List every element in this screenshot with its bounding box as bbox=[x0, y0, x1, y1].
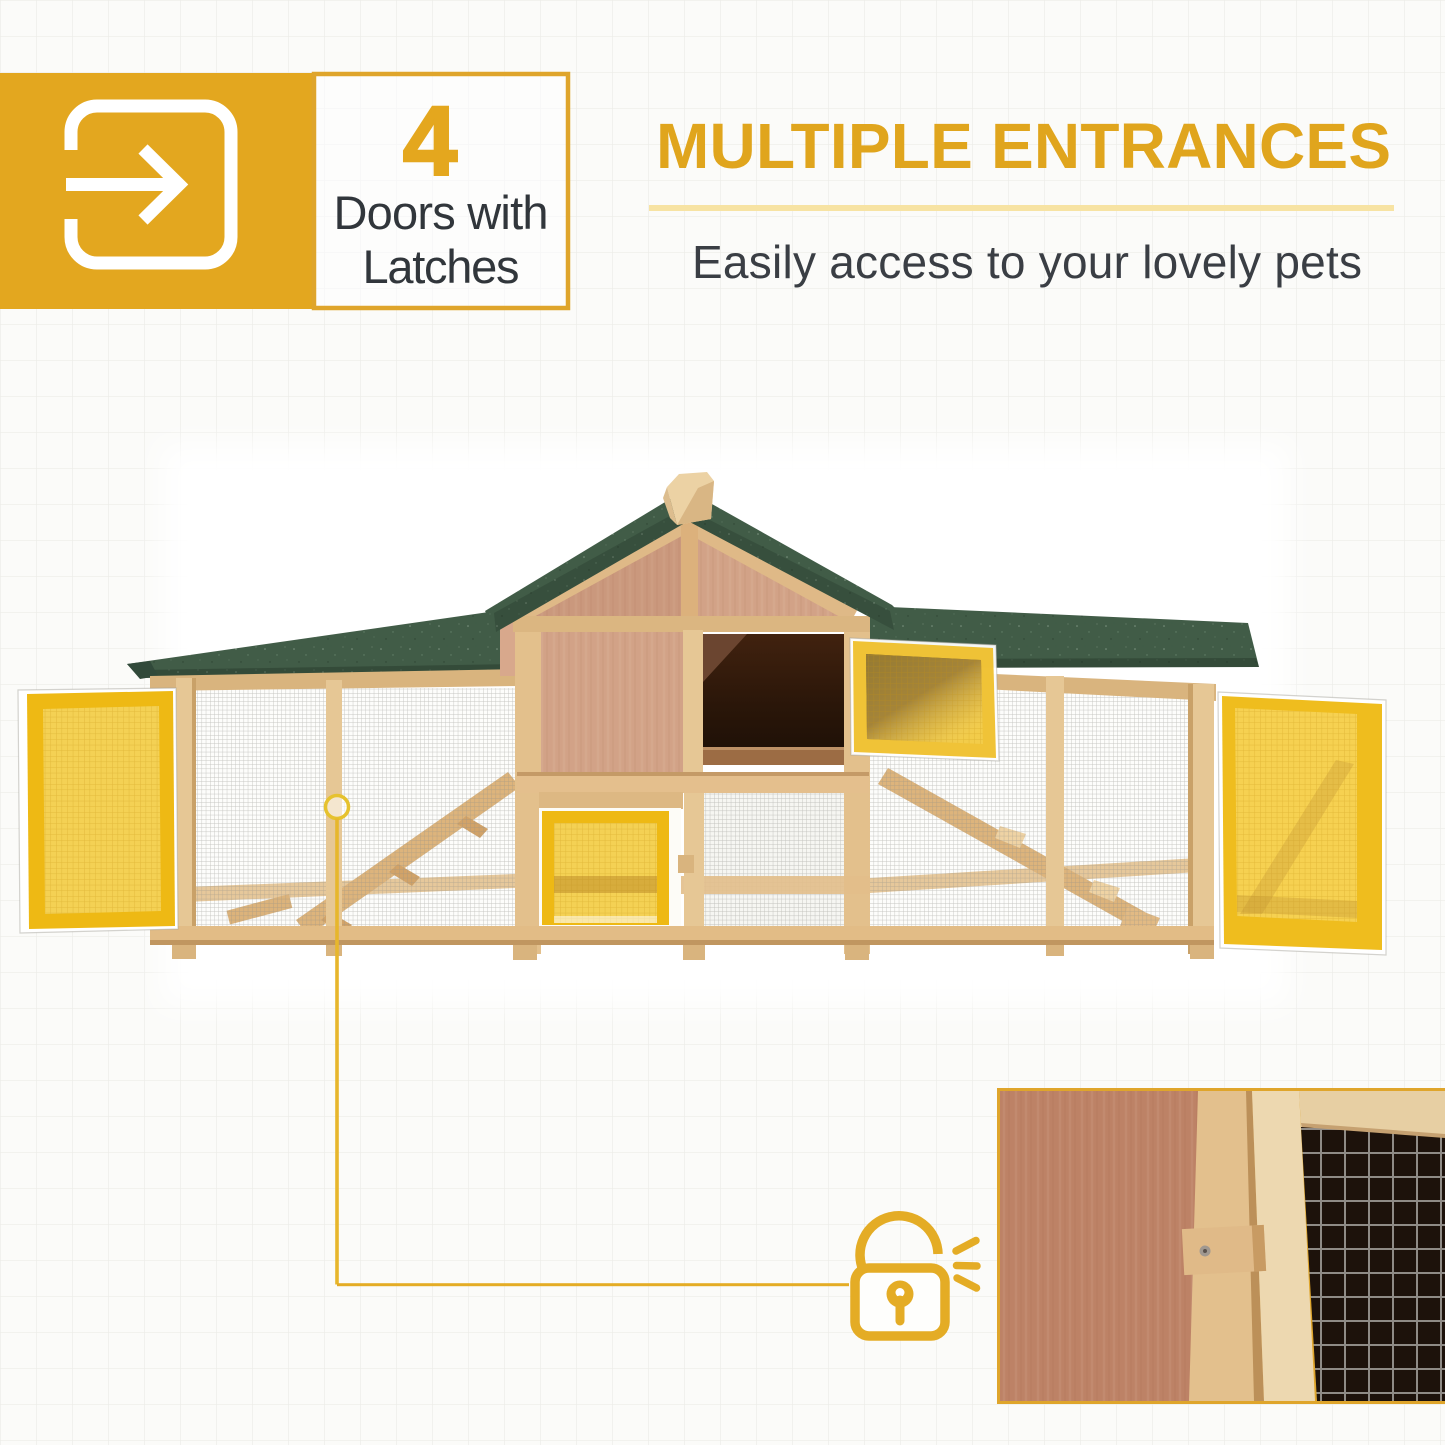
svg-text:Easily access to your lovely p: Easily access to your lovely pets bbox=[692, 236, 1362, 288]
svg-text:MULTIPLE ENTRANCES: MULTIPLE ENTRANCES bbox=[656, 110, 1391, 182]
svg-text:4: 4 bbox=[403, 86, 458, 196]
svg-text:Doors with: Doors with bbox=[334, 186, 549, 239]
svg-text:Latches: Latches bbox=[363, 240, 520, 293]
